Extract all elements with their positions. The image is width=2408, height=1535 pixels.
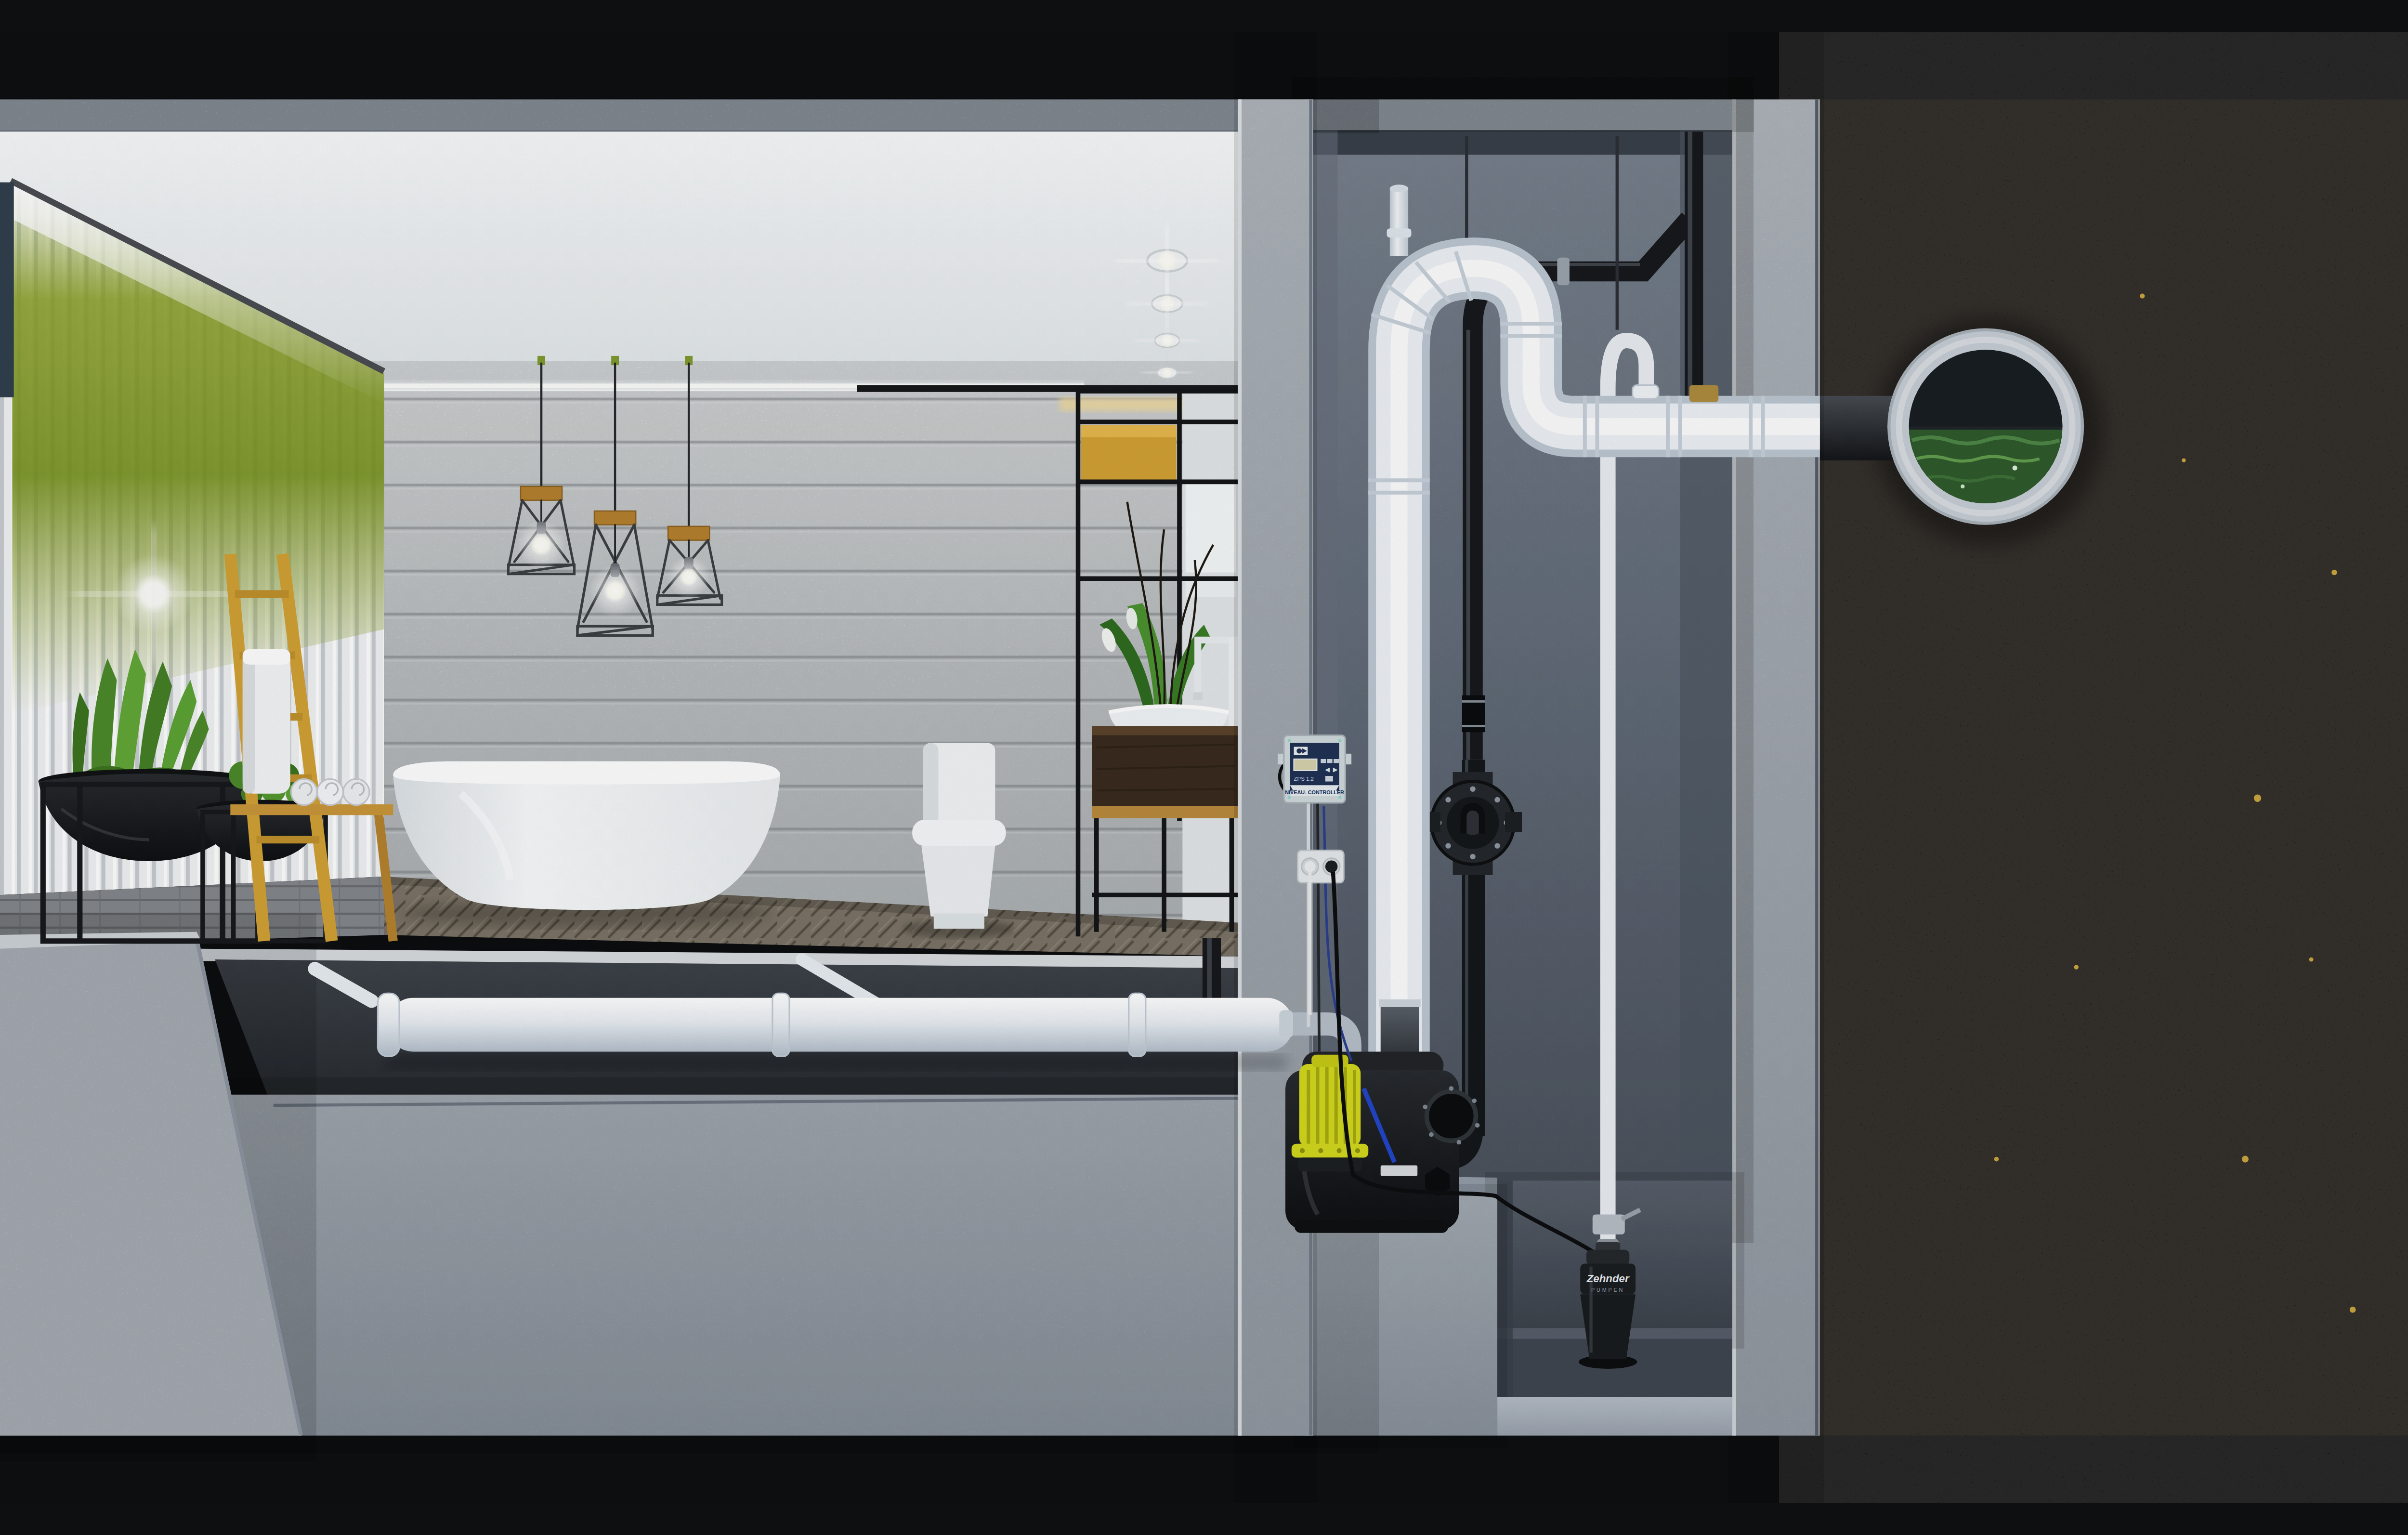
render-stage: ◀ ▶ ZPS 1.2 NIVEAU- CONTROLLER Zehnder P…: [0, 0, 2408, 1535]
film-grain: [0, 99, 2408, 1435]
bathroom-cutaway-render: ◀ ▶ ZPS 1.2 NIVEAU- CONTROLLER Zehnder P…: [0, 0, 2408, 1535]
